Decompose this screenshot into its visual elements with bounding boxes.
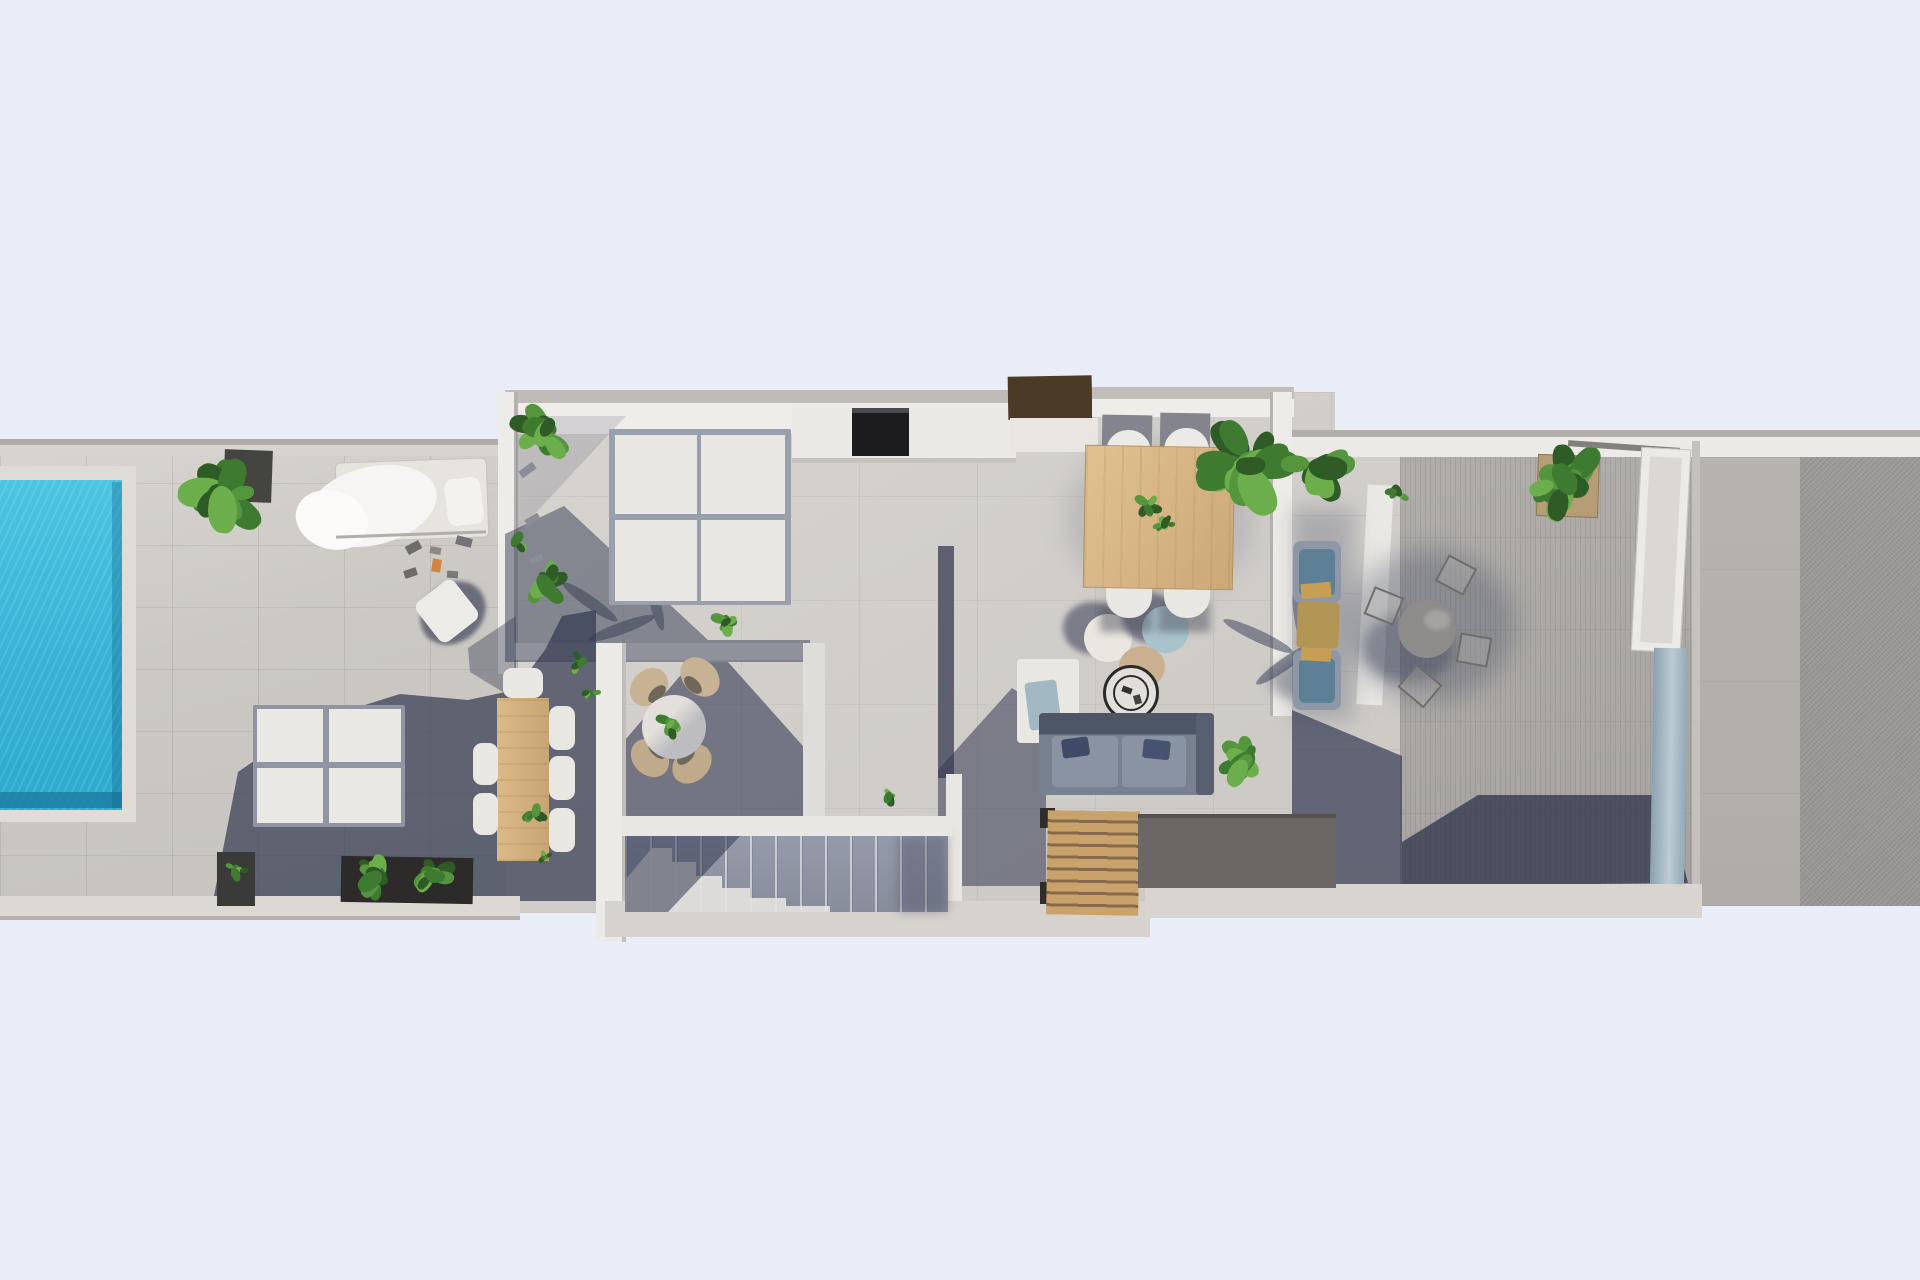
sunlounger-pad-1 (257, 709, 323, 762)
dining-table-plant-2-leaf (1167, 522, 1174, 527)
bar-chair-right-3 (549, 808, 575, 852)
terrace-table-highlight (1424, 610, 1450, 630)
wall-plant-1 (511, 396, 579, 464)
corridor-plant (1280, 428, 1356, 504)
sunbed-pad-2 (701, 435, 785, 514)
courtyard-plant-top (708, 602, 748, 642)
lounge-tan-pillow-1 (1300, 582, 1331, 600)
wall-plant-5 (578, 680, 602, 704)
bar-table (497, 698, 549, 861)
dining-table-plant-2 (1151, 511, 1177, 537)
bar-chair-head (503, 668, 543, 698)
kitchen-counter-edge (792, 458, 1016, 463)
kitchen-appliance-top (852, 408, 909, 413)
stairs-corner-plant (877, 782, 903, 808)
bar-table-plant-2 (535, 848, 553, 866)
wall-plant-5-leaf (593, 690, 601, 695)
kitchen-appliance (852, 408, 909, 456)
scatter-item-5 (447, 571, 458, 579)
bar-table-plant-1 (522, 798, 550, 826)
right-top-edge (1292, 430, 1920, 437)
corridor-plant-2 (1385, 479, 1411, 505)
pool-water (0, 480, 122, 810)
staircase-top-wall (622, 816, 952, 836)
sofa-side-plant (1215, 732, 1275, 792)
dark-divider-wall (938, 546, 954, 778)
terrace-plant (1522, 438, 1610, 526)
floorplan-scene (0, 0, 1920, 1280)
dining-big-plant-leaf (1236, 457, 1265, 475)
planter-small-plant-leaf (239, 868, 247, 874)
sofa-pillow-1 (1061, 736, 1090, 759)
sunlounger-pad-2 (329, 709, 401, 762)
glass-panel (1650, 648, 1688, 885)
planter-small-plant (223, 857, 249, 883)
terrace-round-table (1398, 600, 1456, 658)
sofa-pillow-2 (1142, 739, 1171, 761)
lounge-chair-2-cushion (1299, 658, 1335, 703)
pavement-dark-strip (1800, 441, 1920, 906)
sofa-armrest (1196, 713, 1214, 795)
pool-deep-edge (0, 792, 122, 808)
corridor-plant-2-leaf (1384, 487, 1396, 495)
bar-chair-left-1 (473, 743, 498, 785)
sunlounger-pad-4 (329, 768, 401, 823)
lounge-ottoman (1296, 601, 1340, 648)
plant-topleft (178, 448, 270, 540)
bar-table-plant-2-leaf (545, 852, 552, 858)
left-terrace-bottom-edge (0, 916, 520, 920)
staircase-dark-end (898, 834, 948, 912)
terrace-right-edge-wall (1692, 441, 1700, 906)
pool-right-edge (112, 482, 122, 808)
lounge-tan-pillow-2 (1301, 647, 1332, 662)
walkway-dark (1138, 818, 1336, 888)
sunbed-pad-1 (615, 435, 697, 514)
courtyard-right-wall (803, 643, 825, 836)
planter-long-plant-2 (408, 851, 456, 899)
sunlounger-pad-3 (257, 768, 323, 823)
bistro-table-plant (656, 707, 688, 739)
wall-plant-2 (501, 525, 531, 555)
wood-steps (1046, 810, 1140, 916)
wall-plant-4 (566, 650, 594, 678)
stair-side-pier (946, 774, 962, 916)
right-bottom-wall (1145, 884, 1702, 918)
sunbed-pad-4 (701, 520, 785, 601)
entry-wood-panel (1008, 375, 1093, 419)
bar-chair-right-2 (549, 756, 575, 800)
daybed-pillow (443, 476, 484, 527)
building-top-edge (505, 390, 1017, 403)
wall-plant-3 (519, 558, 571, 610)
pavement-smooth-strip (1698, 441, 1800, 906)
terrace-wire-chair-2 (1456, 632, 1493, 667)
scatter-item-orange (431, 558, 442, 572)
planter-long-plant-1 (352, 851, 404, 903)
sunbed-pad-3 (615, 520, 697, 601)
bar-chair-right-1 (549, 706, 575, 750)
bar-chair-left-2 (473, 793, 498, 835)
